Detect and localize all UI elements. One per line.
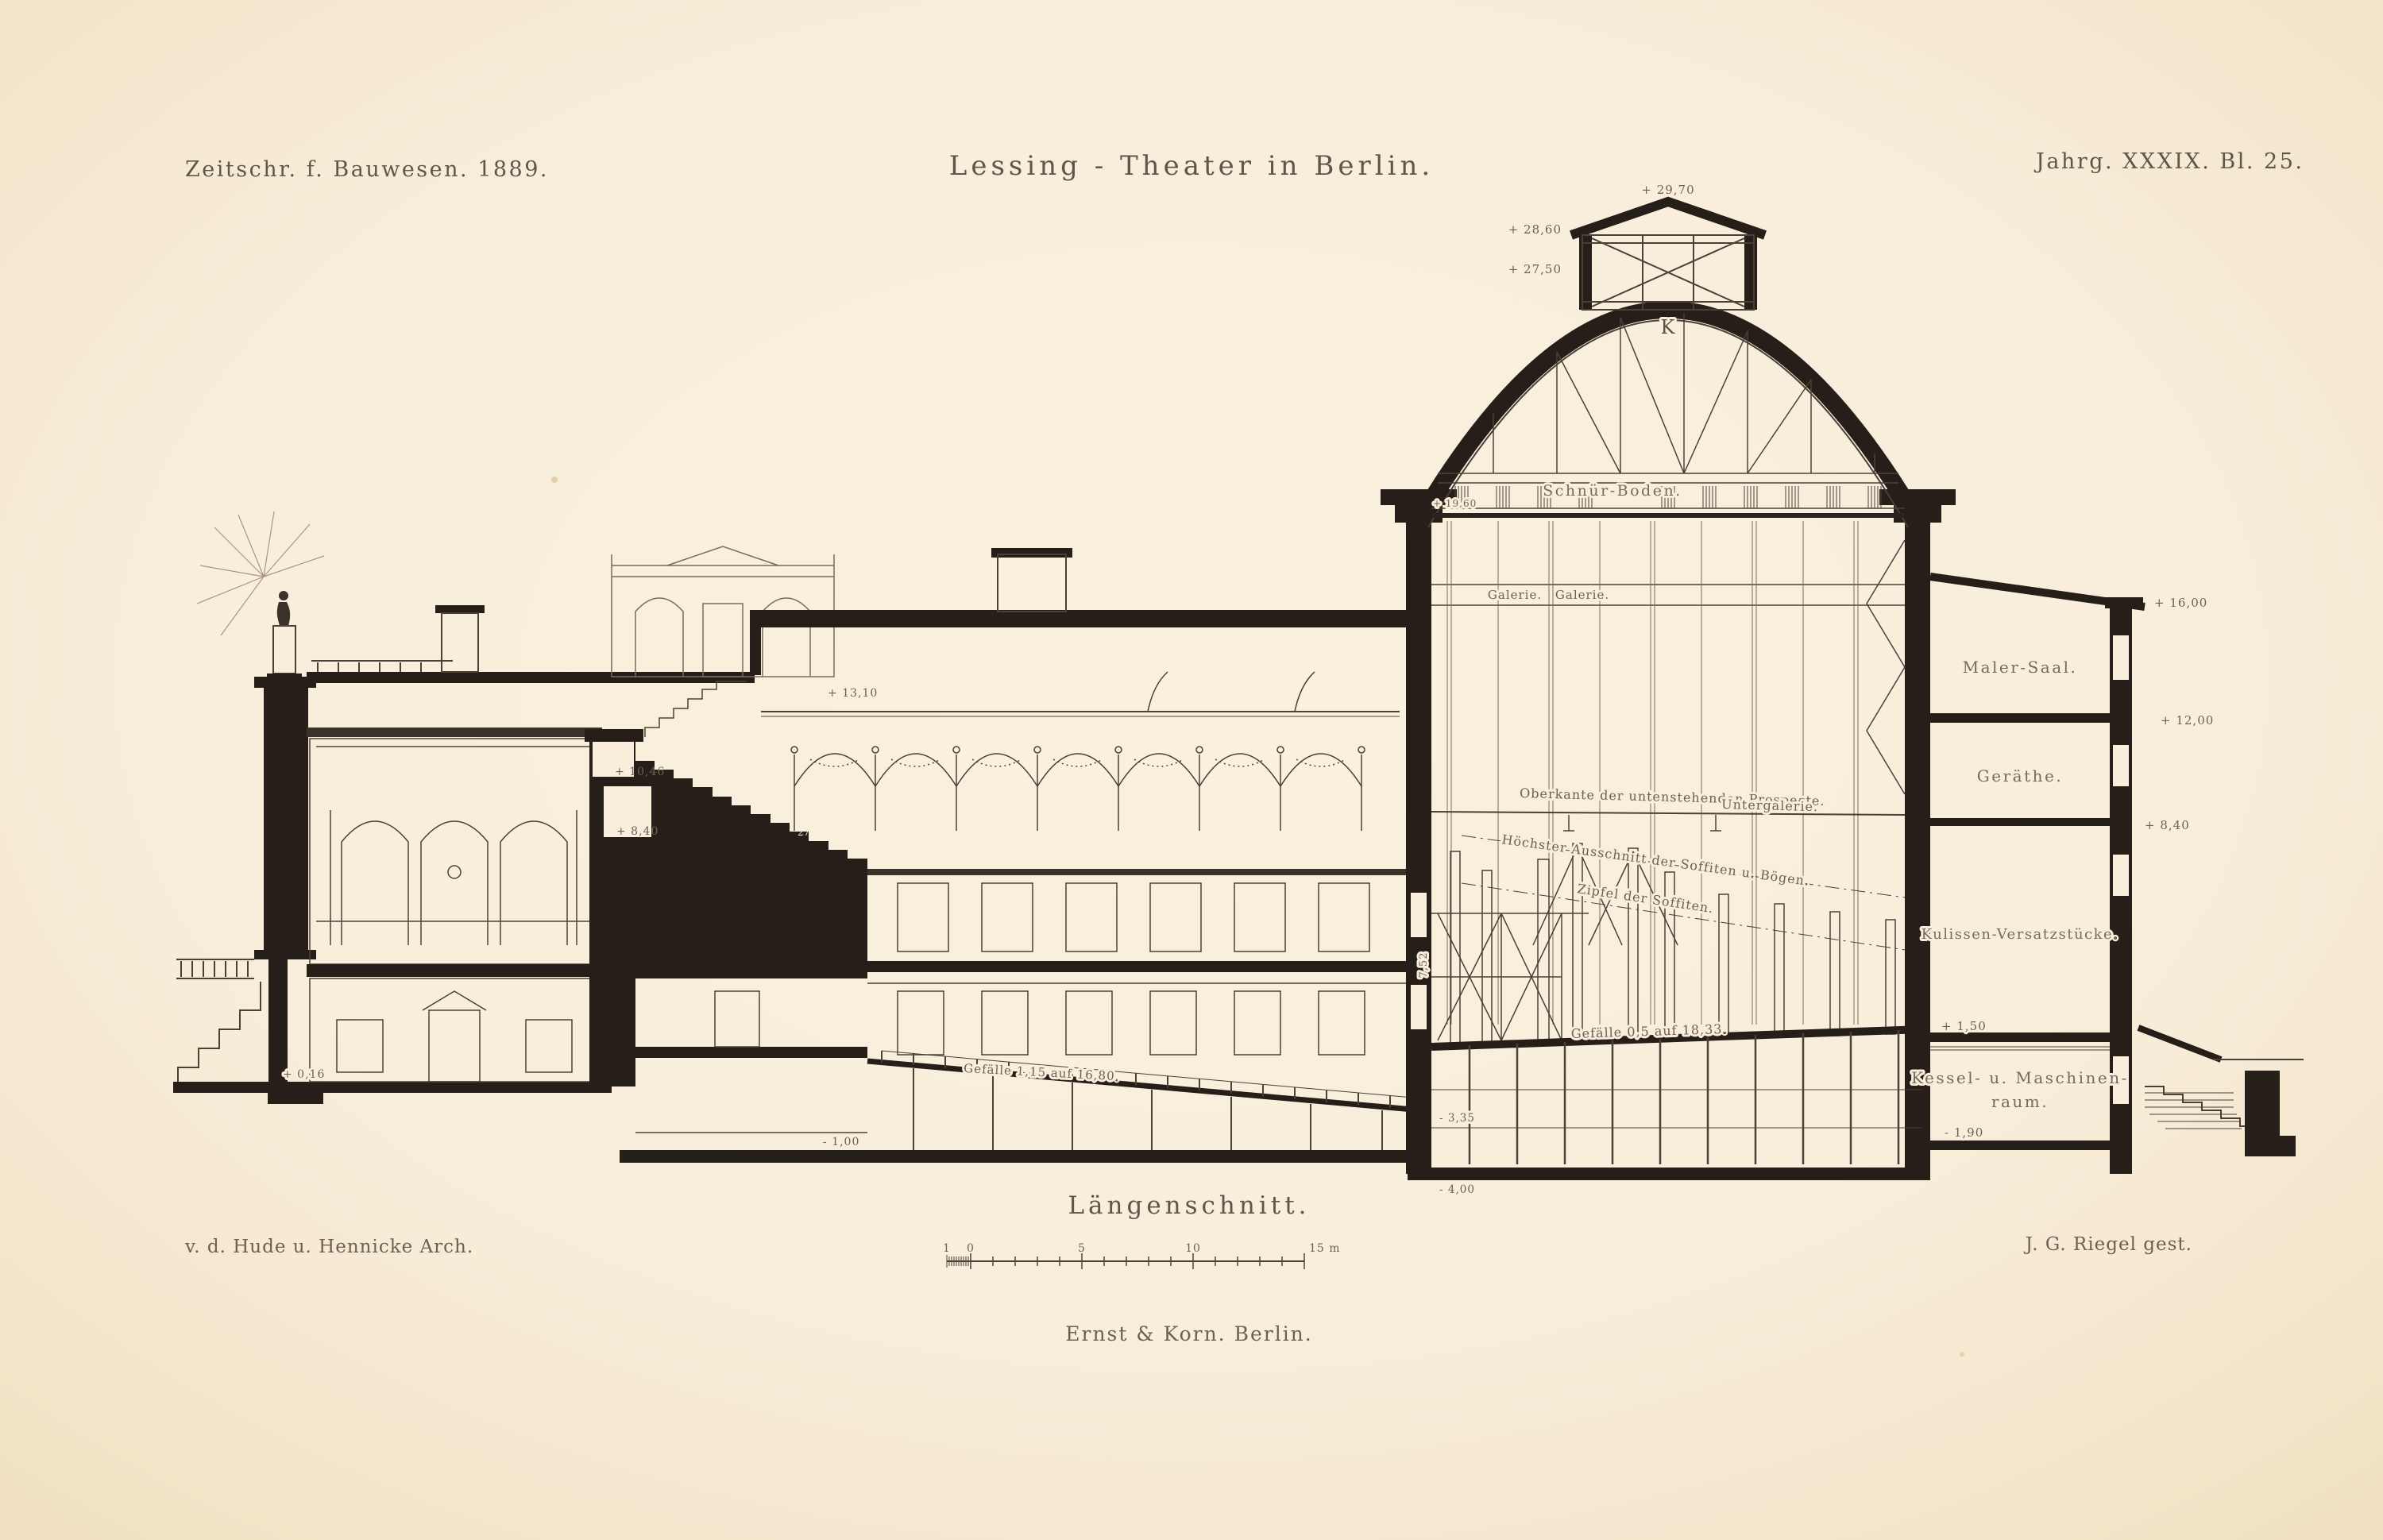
plate-number: Jahrg. XXXIX. Bl. 25. <box>2033 149 2304 174</box>
room-equipment: Geräthe. <box>1977 766 2063 785</box>
level-cellar: - 3,35 <box>1439 1112 1475 1125</box>
scale-label-5: 5 <box>1078 1242 1086 1255</box>
tier-parapet-band <box>867 869 1408 875</box>
level-1046: + 10,46 <box>615 766 665 778</box>
level-grid-floor: + 19,60 <box>1433 498 1477 509</box>
truss-mark: K <box>1661 316 1676 338</box>
level-minus190: - 1,90 <box>1945 1125 1983 1140</box>
paper-blemish <box>551 477 558 483</box>
level-150: + 1,50 <box>1941 1019 1987 1033</box>
foyer-roof <box>307 672 755 683</box>
terrace-cornice <box>254 950 316 959</box>
level-840-left: + 8,40 <box>616 825 659 838</box>
annex-floor-840 <box>1930 818 2110 826</box>
step-number: 27 <box>798 827 809 838</box>
foyer-floor-band <box>307 964 602 977</box>
annex-window-1 <box>2113 635 2129 680</box>
architects-credit: v. d. Hude u. Hennicke Arch. <box>184 1237 473 1257</box>
stair-wall-foot <box>2245 1136 2296 1156</box>
engraver-credit: J. G. Riegel gest. <box>2024 1234 2192 1255</box>
level-1200: + 12,00 <box>2161 713 2214 728</box>
section-caption: Längenschnitt. <box>1068 1191 1310 1220</box>
note-untergalerie: Untergalerie. <box>1721 797 1818 814</box>
foyer-cornice <box>307 728 602 737</box>
auditorium-roof <box>750 610 1408 627</box>
engraving-plate: Zeitschr. f. Bauwesen. 1889. Lessing - T… <box>0 0 2383 1540</box>
room-painter-hall: Maler-Saal. <box>1963 658 2078 677</box>
annex-window-3 <box>2113 855 2129 896</box>
longitudinal-section-drawing: Zeitschr. f. Bauwesen. 1889. Lessing - T… <box>0 0 2383 1540</box>
level-apex: + 29,70 <box>1641 183 1694 197</box>
amphitheater-floor-band <box>635 1047 867 1058</box>
plate-title: Lessing - Theater in Berlin. <box>949 150 1434 182</box>
room-boiler-line2: raum. <box>1991 1092 2049 1111</box>
facade-column <box>268 959 288 1085</box>
wall-left <box>1406 516 1431 1174</box>
level-ground: + 0,16 <box>283 1068 325 1081</box>
grid-floor-label: Schnür-Boden. <box>1543 482 1682 500</box>
facade-wall <box>264 685 308 956</box>
ground-line-left <box>173 1082 612 1093</box>
scale-label-1: 1 <box>943 1242 951 1255</box>
level-1310: + 13,10 <box>828 687 878 700</box>
publisher-credit: Ernst & Korn. Berlin. <box>1065 1322 1312 1345</box>
vent-shaft-cap <box>991 548 1072 558</box>
level-lantern-base: + 27,50 <box>1508 262 1562 276</box>
annex-window-2 <box>2113 745 2129 786</box>
chimney-cap <box>435 605 485 613</box>
annex-floor-150 <box>1930 1032 2110 1042</box>
gallery-label-right: Galerie. <box>1555 588 1609 602</box>
journal-caption: Zeitschr. f. Bauwesen. 1889. <box>185 157 549 182</box>
annex-floor-12 <box>1930 713 2110 723</box>
tier-floor-band <box>867 961 1408 972</box>
level-840-right: + 8,40 <box>2145 818 2190 832</box>
stage-pit-slab <box>1408 1168 1930 1180</box>
scale-label-15m: 15 m <box>1309 1242 1341 1255</box>
dim-height: 7,52 <box>1418 952 1430 978</box>
scale-label-0: 0 <box>967 1242 975 1255</box>
annex-floor-190 <box>1930 1141 2110 1150</box>
wall-door-1 <box>1411 893 1427 937</box>
basement-slab <box>620 1150 1422 1163</box>
level-minus100: - 1,00 <box>823 1136 859 1148</box>
level-eaves: + 28,60 <box>1508 222 1562 237</box>
roof-step <box>750 627 761 675</box>
room-boiler-line1: Kessel- u. Maschinen- <box>1911 1068 2129 1087</box>
level-1600: + 16,00 <box>2154 596 2207 610</box>
room-scenery-store: Kulissen-Versatzstücke. <box>1921 926 2119 943</box>
scale-label-10: 10 <box>1185 1242 1201 1255</box>
wall-door-2 <box>1411 985 1427 1029</box>
paper-blemish <box>1960 1352 1964 1357</box>
level-pit: - 4,00 <box>1439 1183 1475 1196</box>
gallery-label-left: Galerie. <box>1488 588 1542 602</box>
foundation-block <box>268 1093 323 1104</box>
